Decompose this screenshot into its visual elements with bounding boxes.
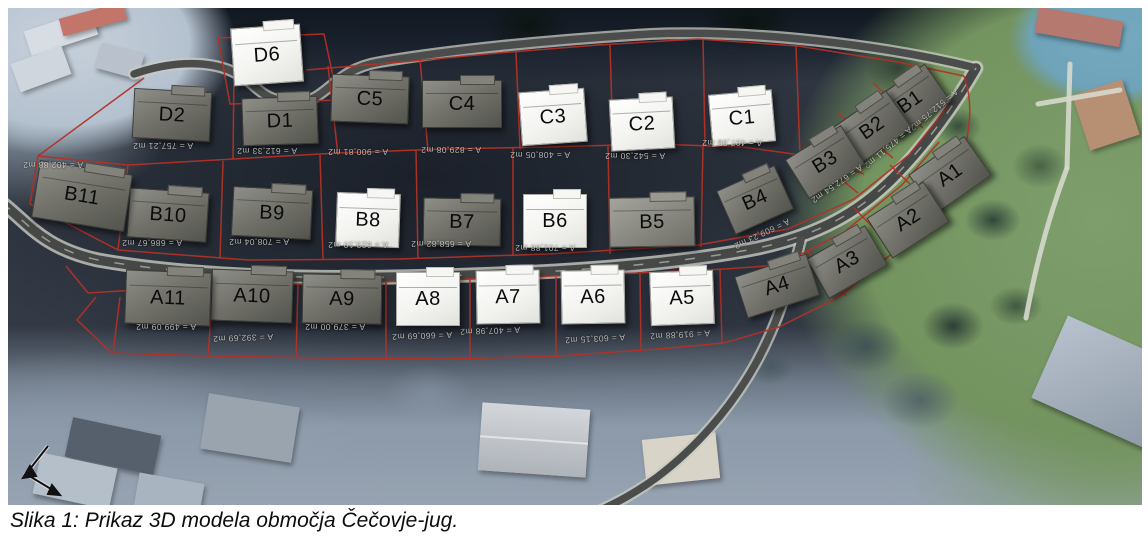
plot-house-B9: B9 [231,186,314,240]
axis-gizmo-icon [23,446,60,495]
house-roof-step [263,19,294,31]
plot-label: A5 [669,288,695,309]
house-roof-step [460,75,495,85]
plot-label: D1 [266,111,293,132]
plot-house-A6: A6 [561,269,626,324]
plot-label: A1 [934,160,966,191]
plot-house-A10: A10 [210,269,294,324]
plot-label: A8 [415,289,440,309]
house-roof-step [638,92,667,103]
house-roof-step [426,267,454,277]
plot-label: B10 [149,204,187,227]
plot-area-label-A8: A = 660,69 m2 [392,330,453,342]
plot-house-C2: C2 [609,96,676,151]
plot-area-label-A9: A = 379,00 m2 [305,322,365,332]
house-roof-step [251,265,287,276]
house-roof-step [167,266,205,277]
house-roof-step [340,269,375,280]
house-roof-step [277,91,310,102]
house-roof-step [737,85,766,97]
plot-label: D6 [253,44,281,66]
plot-label: B8 [355,210,381,231]
plot-label: A7 [495,287,521,307]
plot-house-A9: A9 [302,273,383,324]
plot-label: B11 [63,183,101,208]
plot-label: A3 [831,247,863,277]
plot-area-label-C4: A = 829,08 m2 [421,145,481,155]
house-roof-step [369,70,403,81]
plot-label: D2 [158,104,186,125]
plot-area-label-B11: A = 402,88 m2 [23,160,83,170]
plot-label: C5 [356,89,383,110]
plot-label: C1 [728,107,756,129]
plot-area-label-D1: A = 612,33 m2 [237,146,297,156]
plot-label: B7 [449,212,475,232]
house-roof-step [460,193,494,204]
plot-label: C2 [628,113,656,134]
house-roof-step [367,188,395,199]
plot-label: C4 [449,94,476,114]
house-roof-step [505,265,533,275]
plot-label: B3 [809,147,841,177]
plot-label: B5 [639,212,665,232]
house-roof-step [649,191,686,202]
plot-area-label-C3: A = 408,05 m2 [510,150,570,160]
figure-container: D6 D2 A = 757,21 m2 D1 A = 612,33 m2 C5 … [0,0,1148,544]
plot-house-A11: A11 [124,270,212,327]
house-roof-step [271,183,306,195]
plot-area-label-A11: A = 499,09 m2 [136,322,196,332]
plot-house-A7: A7 [476,269,541,324]
plot-label: A11 [150,287,186,308]
plot-label: C3 [539,106,567,128]
plot-label: A10 [233,285,271,306]
plot-area-label-A10: A = 392,69 m2 [213,332,274,344]
plot-area-label-B9: A = 708,04 m2 [229,237,289,247]
house-roof-step [167,185,202,197]
plot-label: B4 [739,186,770,215]
plot-area-label-B10: A = 686,67 m2 [122,238,182,248]
plot-house-D2: D2 [132,88,213,142]
plot-area-label-A7: A = 407,98 m2 [460,325,521,337]
plot-label: B6 [542,211,567,231]
plot-house-A5: A5 [649,270,715,326]
plot-house-C3: C3 [518,88,588,146]
plot-house-D6: D6 [230,24,304,87]
plot-house-A8: A8 [396,272,460,326]
plot-house-B5: B5 [609,196,696,247]
plot-area-label-D2: A = 757,21 m2 [133,141,193,151]
plot-house-C5: C5 [330,74,410,125]
plot-label: B9 [259,202,285,223]
house-roof-step [679,265,707,276]
plot-area-label-C2: A = 542,30 m2 [605,151,665,161]
plot-label: B2 [856,113,888,144]
plot-area-label-B8: A = 623,10 m2 [328,240,388,250]
plot-area-label-B6: A = 701,88 m2 [515,243,575,253]
plot-area-label-B7: A = 658,82 m2 [411,239,471,249]
plot-area-label-C5: A = 900,81 m2 [328,147,388,157]
plot-house-D1: D1 [241,96,319,147]
house-roof-step [590,265,618,275]
plot-label: A4 [762,273,792,300]
plot-house-C4: C4 [422,80,502,128]
house-roof-step [553,189,581,199]
house-roof-step [549,83,579,95]
plot-label: A9 [329,289,355,309]
plot-area-label-C1: A = 497,98 m2 [702,138,762,148]
figure-caption: Slika 1: Prikaz 3D modela območja Čečovj… [10,509,458,533]
plot-label: A2 [892,205,924,236]
plot-house-B6: B6 [523,194,587,248]
house-roof-step [171,85,205,97]
plot-label: A6 [580,287,606,307]
aerial-3d-model-view: D6 D2 A = 757,21 m2 D1 A = 612,33 m2 C5 … [8,8,1142,505]
plot-house-B10: B10 [126,187,209,242]
